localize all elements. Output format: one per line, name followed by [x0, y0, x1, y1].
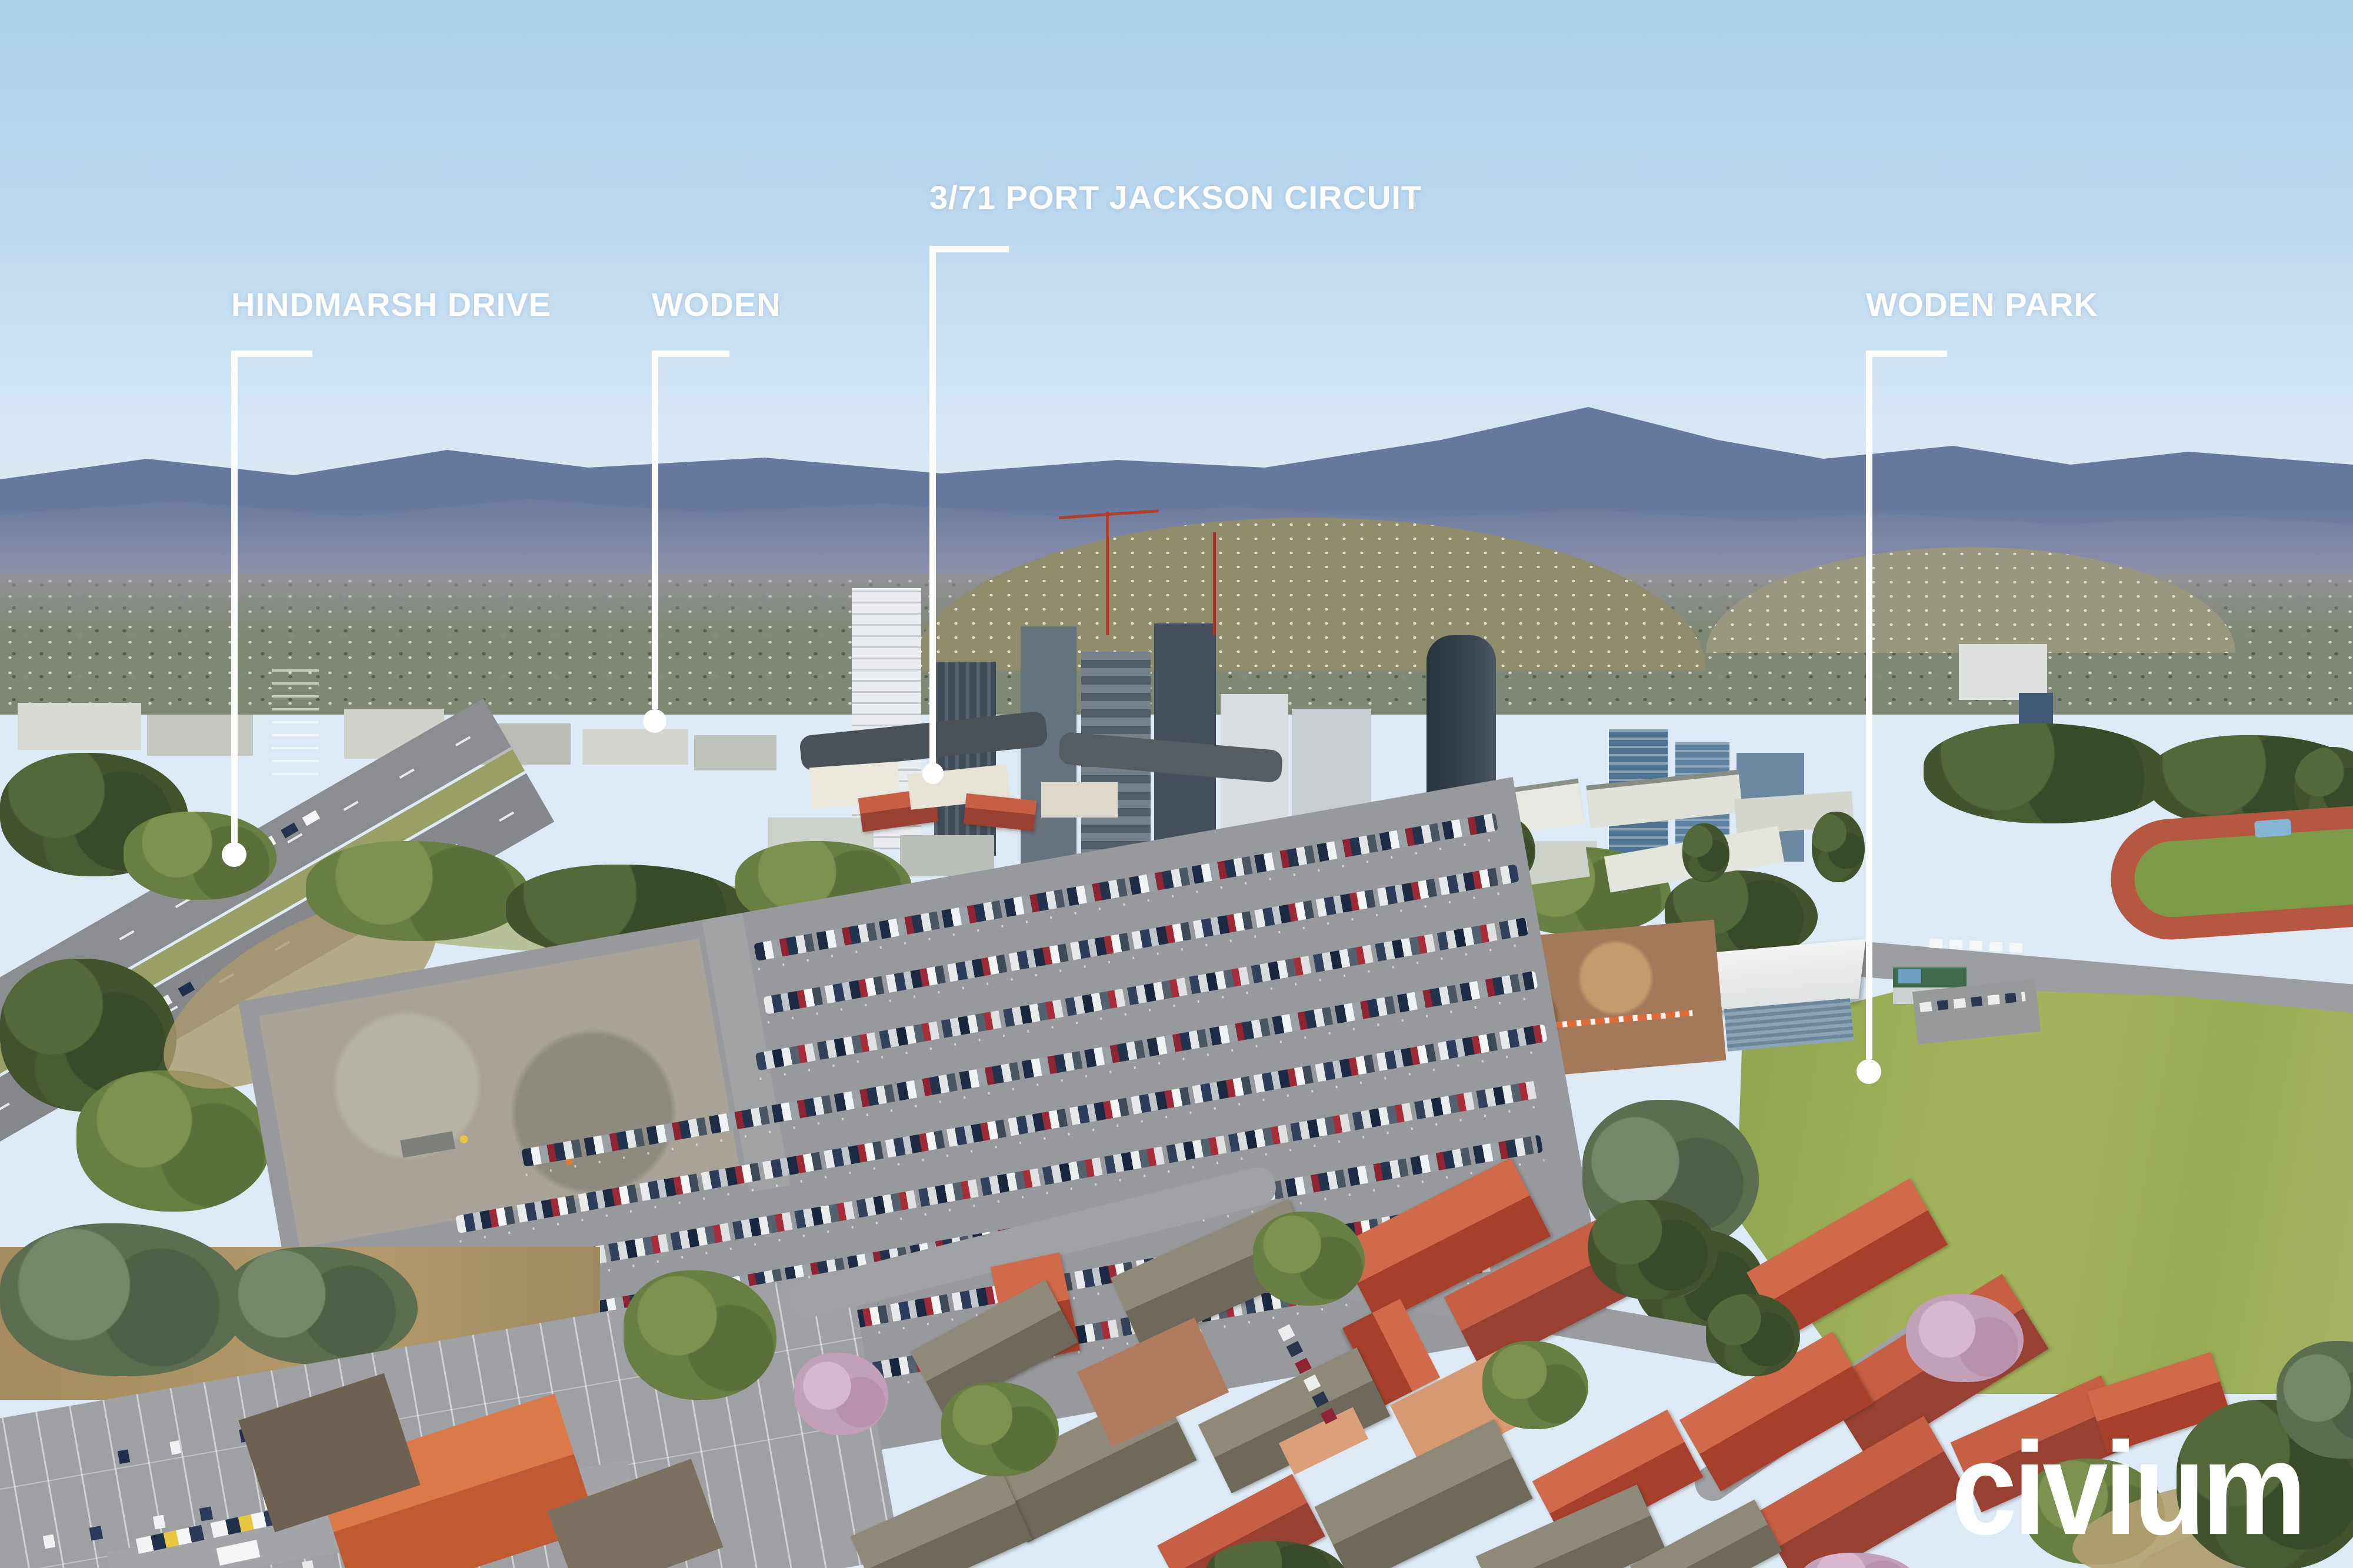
track-infield [2132, 824, 2353, 919]
crane-mast [1213, 532, 1216, 635]
heritage-building [1041, 782, 1118, 818]
parked-cars [1919, 992, 2026, 1012]
location-marker-woden-park [1857, 1059, 1881, 1084]
leader-foot [652, 351, 729, 357]
leader-line [929, 246, 936, 763]
tree-cluster [0, 1223, 247, 1376]
tree-cluster [1706, 1294, 1800, 1376]
leader-line [231, 351, 238, 843]
tree-cluster [76, 1070, 271, 1212]
commercial-building [694, 735, 776, 770]
commercial-building [18, 703, 141, 750]
aerial-photo: 3/71 PORT JACKSON CIRCUIT HINDMARSH DRIV… [0, 0, 2353, 1568]
leader-foot [929, 246, 1009, 252]
location-marker-woden [643, 709, 666, 733]
blossom-tree [794, 1353, 888, 1435]
commercial-building [582, 729, 688, 765]
gravel-area [259, 939, 740, 1248]
location-marker-hindmarsh-drive [222, 842, 246, 867]
label-port-jackson: 3/71 PORT JACKSON CIRCUIT [929, 181, 1422, 214]
leader-foot [1866, 351, 1947, 357]
tree-cluster [124, 812, 276, 900]
tree-cluster [1482, 1341, 1588, 1429]
low-building [900, 835, 994, 876]
blue-tarp [1898, 969, 1921, 983]
conifer [1812, 812, 1865, 882]
running-track [2107, 800, 2353, 944]
white-midrise [1959, 644, 2047, 700]
high-jump-mat [2254, 819, 2292, 838]
grandstand [1710, 939, 1872, 1064]
crane-mast [1106, 512, 1109, 635]
civium-logo: civium [1951, 1423, 2303, 1555]
label-hindmarsh-drive: HINDMARSH DRIVE [231, 288, 551, 321]
leader-line [1866, 351, 1872, 1059]
dark-roof-apartments [799, 710, 1048, 772]
leader-foot [231, 351, 312, 357]
label-woden-park: WODEN PARK [1866, 288, 2098, 321]
label-woden: WODEN [652, 288, 781, 321]
material-stacks [400, 1131, 455, 1157]
tree-cluster [1924, 723, 2171, 823]
leader-line [652, 351, 658, 709]
yellow-equipment [459, 1135, 468, 1144]
conifer [1682, 823, 1729, 882]
yellow-tower [272, 669, 319, 784]
location-marker-port-jackson [922, 763, 944, 784]
dark-tower [934, 662, 996, 856]
